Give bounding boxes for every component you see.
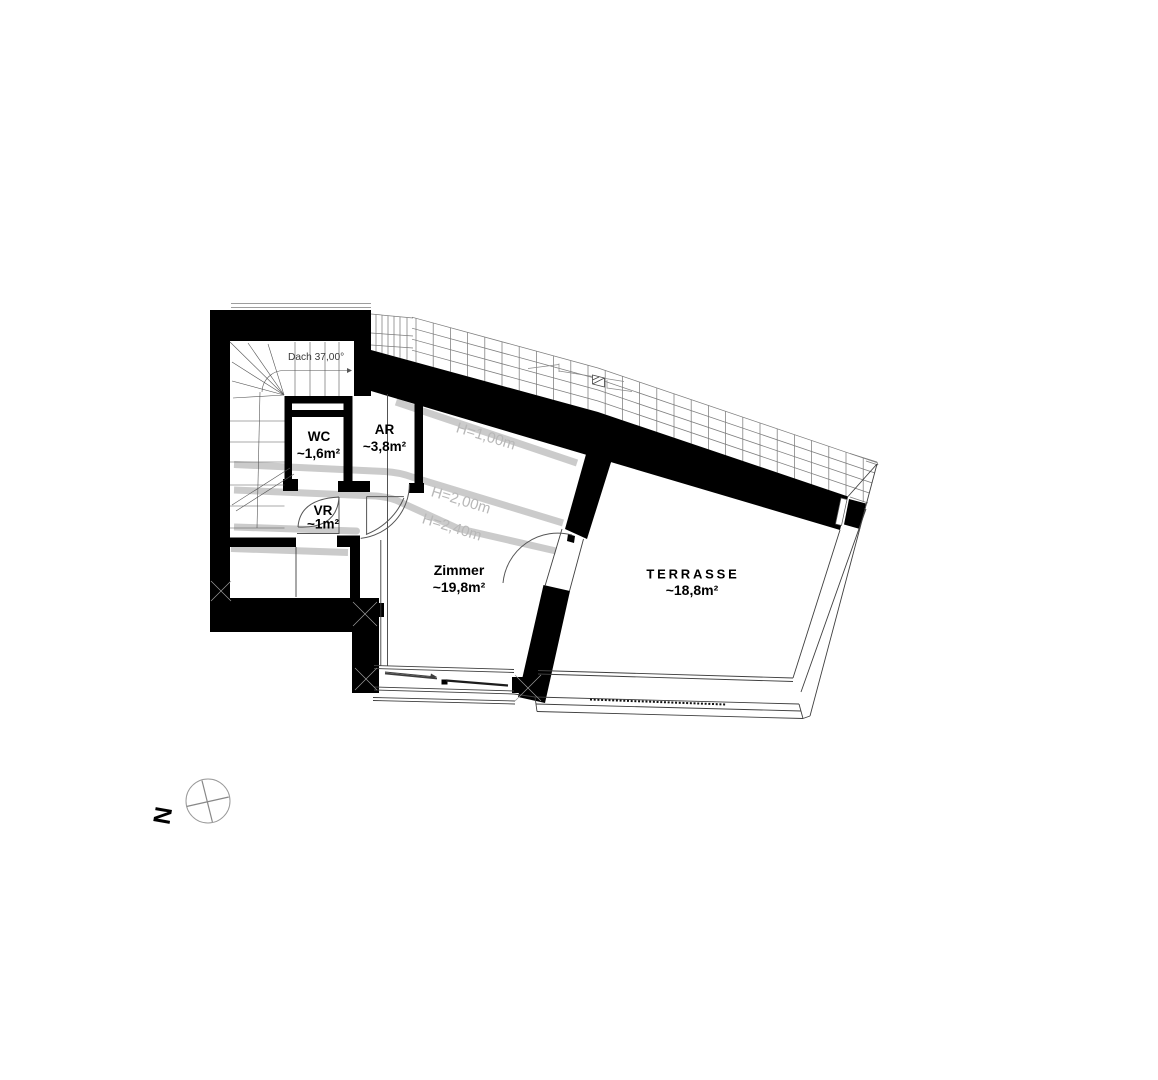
svg-text:~19,8m²: ~19,8m² — [433, 579, 486, 595]
svg-text:~3,8m²: ~3,8m² — [363, 439, 407, 454]
svg-text:WC: WC — [308, 429, 331, 444]
svg-text:H=2,40m: H=2,40m — [420, 510, 484, 544]
svg-text:Dach 37,00°: Dach 37,00° — [288, 352, 344, 363]
svg-text:N: N — [147, 804, 177, 826]
svg-text:AR: AR — [375, 422, 395, 437]
svg-text:~1,6m²: ~1,6m² — [297, 446, 341, 461]
svg-text:~1m²: ~1m² — [307, 517, 339, 532]
svg-text:TERRASSE: TERRASSE — [646, 567, 739, 582]
svg-text:Zimmer: Zimmer — [434, 562, 485, 578]
svg-text:~18,8m²: ~18,8m² — [666, 582, 719, 598]
